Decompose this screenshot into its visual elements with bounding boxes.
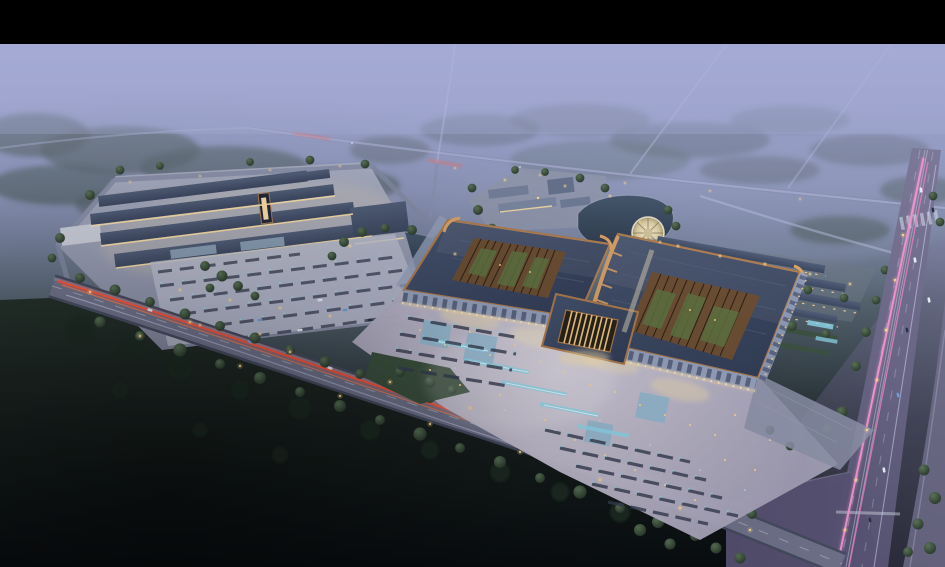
vignette — [0, 44, 945, 567]
aerial-render — [0, 0, 945, 567]
letterbox-top-bar — [0, 0, 945, 44]
aerial-render-frame — [0, 0, 945, 567]
